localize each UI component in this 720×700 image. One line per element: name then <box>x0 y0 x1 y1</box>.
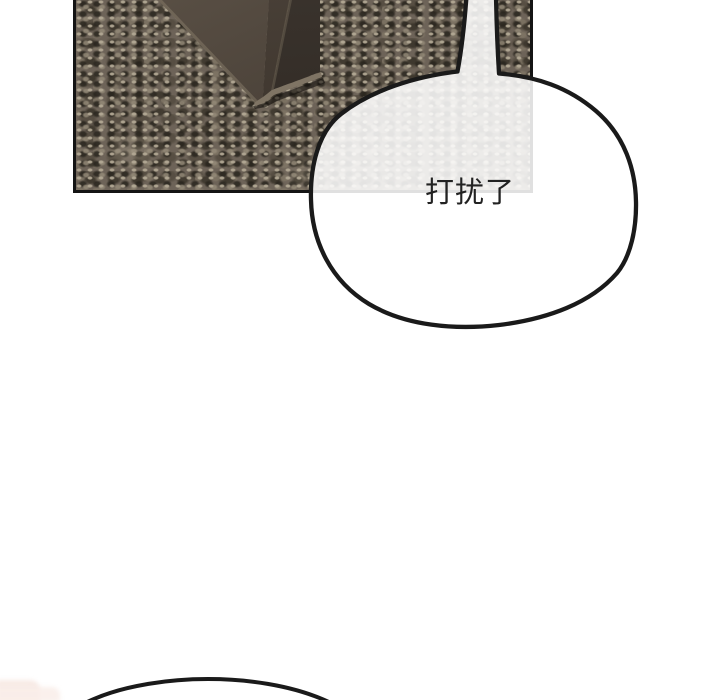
comic-page: 打扰了 <box>0 0 720 700</box>
next-panel-bubble <box>46 679 370 700</box>
speech-bubble <box>311 0 636 327</box>
speech-bubbles-overlay <box>0 0 720 700</box>
speech-bubble-text: 打扰了 <box>356 177 584 209</box>
